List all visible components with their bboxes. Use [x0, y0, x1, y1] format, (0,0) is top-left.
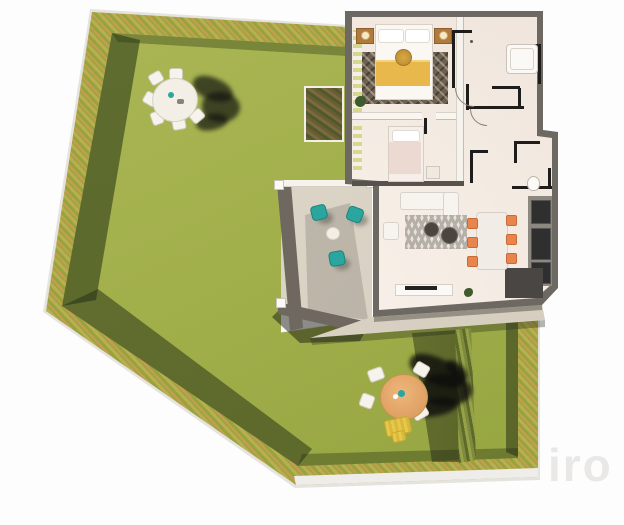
partition-wall	[470, 150, 488, 153]
partition-wall	[470, 150, 473, 183]
toilet	[527, 176, 540, 191]
parasol-table	[380, 374, 428, 420]
dining-chair	[467, 237, 478, 248]
coffee-table	[441, 227, 458, 244]
table-item	[177, 99, 184, 104]
pillow	[392, 130, 420, 142]
fridge	[531, 228, 551, 260]
partition-wall	[548, 168, 551, 188]
dining-chair	[467, 218, 478, 229]
bedside-lamp	[361, 31, 370, 40]
bedroom-window-shutter	[353, 126, 362, 170]
bathtub-inner	[510, 48, 534, 70]
table-item	[168, 92, 174, 98]
dining-table	[476, 212, 508, 270]
stove	[531, 200, 551, 224]
iro-watermark: iro	[548, 438, 613, 492]
dining-chair	[506, 215, 517, 226]
terrace-chair	[328, 250, 346, 268]
terrace-table	[326, 227, 340, 240]
partition-wall	[492, 86, 520, 89]
pillow	[378, 29, 404, 43]
bedroom-divider-wall	[436, 112, 458, 120]
dining-chair	[506, 253, 517, 264]
planter-box	[304, 86, 344, 142]
partition-wall	[452, 30, 472, 33]
coffee-table	[424, 222, 439, 237]
floor-plan-render: iro	[0, 0, 624, 525]
table-item	[393, 394, 398, 399]
bedroom-divider-wall	[352, 112, 422, 120]
terrace-post	[276, 298, 286, 308]
pillow	[405, 29, 430, 43]
terrace-post	[274, 180, 284, 190]
round-cushion	[395, 49, 412, 66]
single-bed-blanket	[389, 142, 421, 174]
nightstand	[426, 166, 440, 179]
partition-wall	[518, 88, 521, 108]
partition-wall	[452, 32, 455, 88]
entry-porch	[505, 268, 543, 298]
partition-wall	[514, 141, 540, 144]
bedside-lamp	[439, 31, 448, 40]
tv	[405, 286, 437, 290]
partition-wall	[538, 44, 541, 84]
partition-wall	[424, 118, 427, 134]
dining-chair	[506, 234, 517, 245]
dining-chair	[467, 256, 478, 267]
ceiling-light-dot	[470, 40, 473, 43]
partition-wall	[514, 141, 517, 163]
armchair	[383, 222, 399, 240]
table-item	[398, 390, 405, 397]
